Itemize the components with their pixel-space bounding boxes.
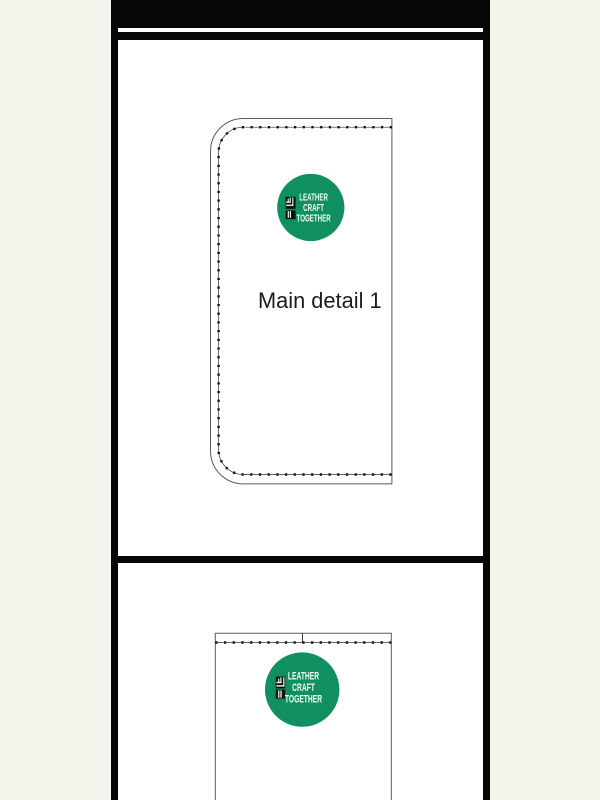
svg-text:CRAFT: CRAFT <box>292 681 315 693</box>
svg-text:TOGETHER: TOGETHER <box>285 693 322 705</box>
svg-text:LEATHER: LEATHER <box>288 670 319 682</box>
svg-text:TOGETHER: TOGETHER <box>297 212 331 224</box>
svg-text:Main detail 1: Main detail 1 <box>258 288 382 313</box>
